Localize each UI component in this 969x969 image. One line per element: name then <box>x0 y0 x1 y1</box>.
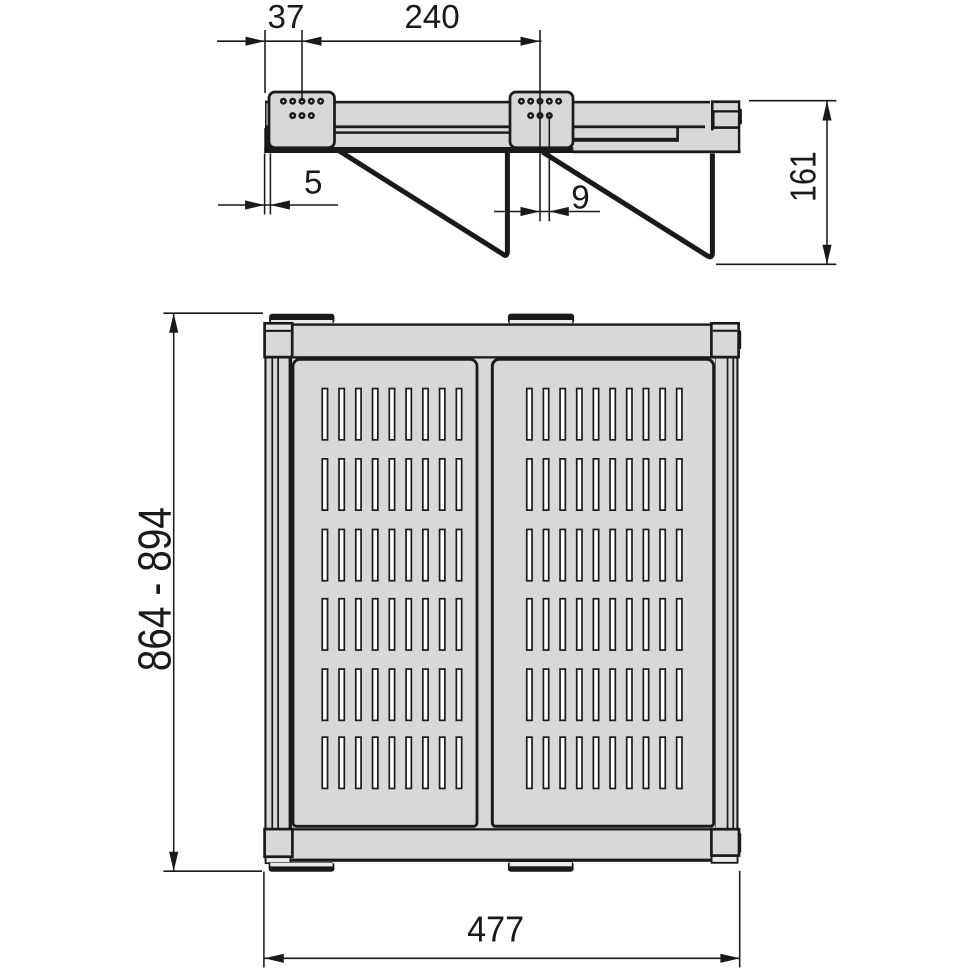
svg-text:9: 9 <box>571 179 589 216</box>
svg-text:161: 161 <box>784 151 824 202</box>
svg-text:477: 477 <box>467 910 524 950</box>
svg-text:5: 5 <box>304 165 322 202</box>
svg-text:864 - 894: 864 - 894 <box>129 507 181 671</box>
svg-text:37: 37 <box>268 0 305 36</box>
svg-text:240: 240 <box>404 0 459 36</box>
